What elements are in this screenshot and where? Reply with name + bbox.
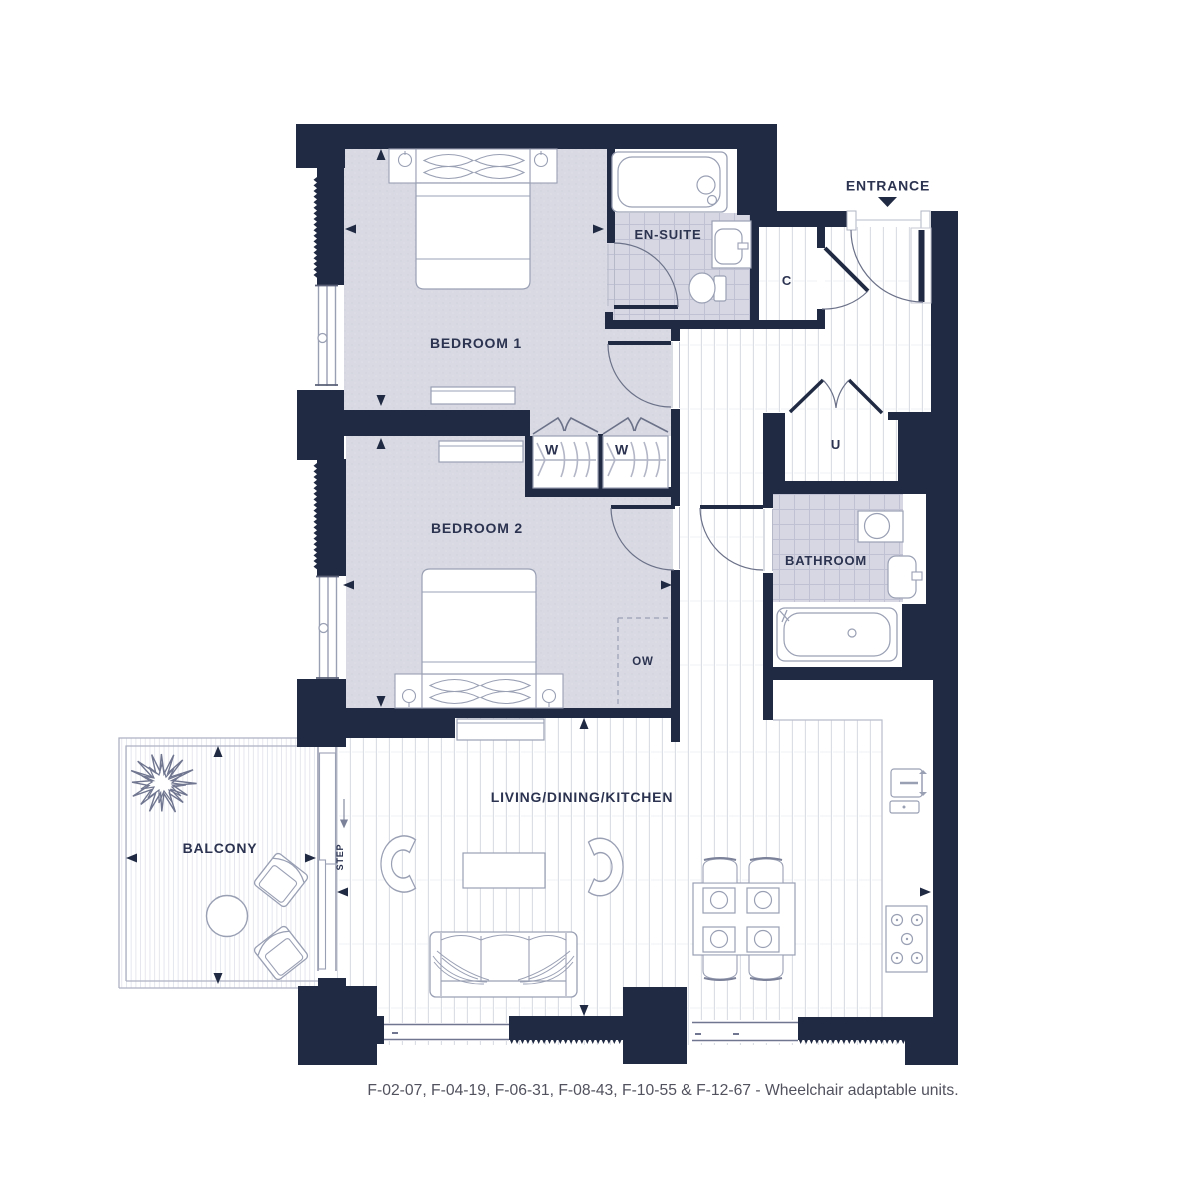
svg-text:LIVING/DINING/KITCHEN: LIVING/DINING/KITCHEN [491, 789, 673, 805]
svg-text:C: C [782, 273, 792, 288]
svg-text:BATHROOM: BATHROOM [785, 553, 867, 568]
svg-text:ENTRANCE: ENTRANCE [846, 178, 930, 194]
svg-text:W: W [615, 442, 629, 458]
svg-text:W: W [545, 442, 559, 458]
svg-text:EN-SUITE: EN-SUITE [634, 227, 701, 242]
svg-text:BEDROOM 1: BEDROOM 1 [430, 335, 522, 351]
svg-text:STEP: STEP [335, 844, 345, 871]
svg-text:BEDROOM 2: BEDROOM 2 [431, 520, 523, 536]
svg-text:BALCONY: BALCONY [183, 840, 258, 856]
svg-text:OW: OW [632, 656, 653, 668]
svg-text:F-02-07, F-04-19, F-06-31, F-0: F-02-07, F-04-19, F-06-31, F-08-43, F-10… [367, 1082, 958, 1099]
svg-text:U: U [831, 437, 841, 452]
